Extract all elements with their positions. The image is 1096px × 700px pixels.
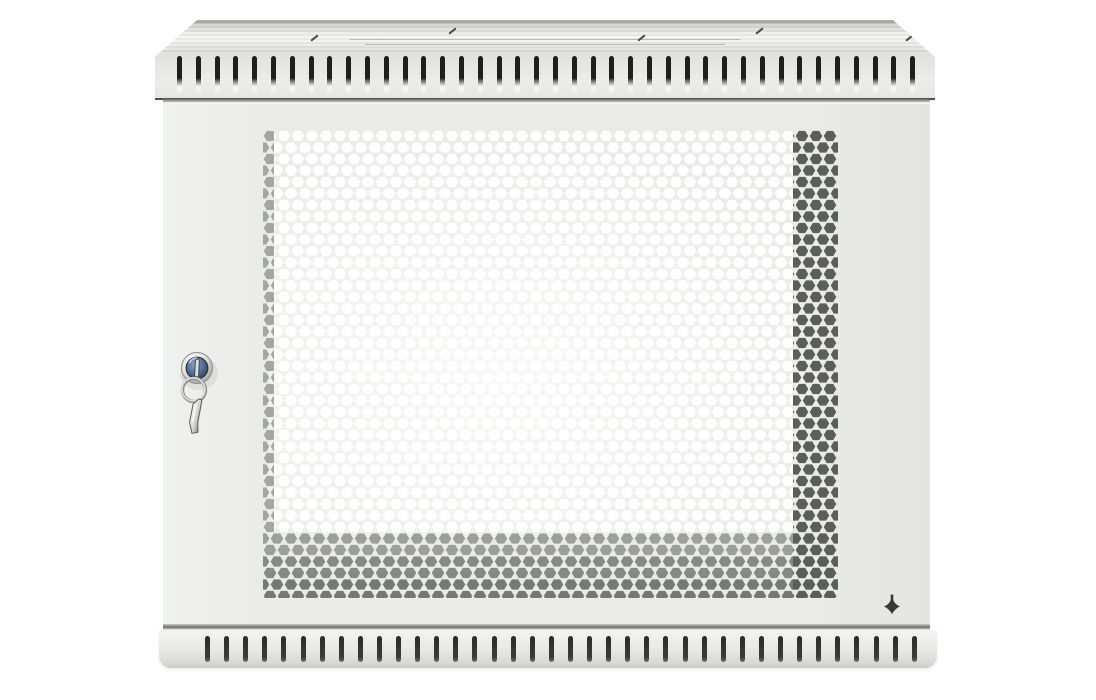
top-surface: [155, 20, 935, 54]
vent-slot: [205, 636, 210, 662]
vent-slot: [511, 636, 516, 662]
vent-slot: [358, 636, 363, 662]
vent-slot: [421, 56, 426, 93]
vent-slot: [262, 636, 267, 662]
vent-slot: [722, 56, 727, 93]
vent-slot: [281, 636, 286, 662]
vent-slot: [196, 56, 201, 93]
metal-sheen: [155, 20, 935, 54]
vent-slot: [628, 56, 633, 93]
vent-slot: [346, 56, 351, 93]
vent-slot: [703, 56, 708, 93]
vent-slot: [327, 56, 332, 93]
vent-slot: [492, 636, 497, 662]
vent-slot: [440, 56, 445, 93]
vent-slot: [453, 636, 458, 662]
vent-slot: [835, 636, 840, 662]
vent-slot: [403, 56, 408, 93]
vent-slot: [215, 56, 220, 93]
vent-slot: [377, 636, 382, 662]
vent-slot: [478, 56, 483, 93]
vent-slot: [549, 636, 554, 662]
product-photo: [0, 0, 1096, 700]
vent-slot: [271, 56, 276, 93]
vent-slot: [779, 56, 784, 93]
vent-slot: [320, 636, 325, 662]
vent-slot: [873, 56, 878, 93]
vent-slot: [740, 636, 745, 662]
vent-slot: [587, 636, 592, 662]
vent-slot: [459, 56, 464, 93]
vent-slot: [797, 56, 802, 93]
front-door: [163, 103, 930, 624]
vent-slot: [434, 636, 439, 662]
vent-slot: [874, 636, 879, 662]
vent-slot: [290, 56, 295, 93]
top-vent-grille: [155, 54, 935, 98]
vent-slot: [224, 636, 229, 662]
vent-slot: [252, 56, 257, 93]
vent-slot: [396, 636, 401, 662]
vent-slot: [721, 636, 726, 662]
bottom-panel: [159, 630, 937, 668]
vent-slot: [741, 56, 746, 93]
vent-slot: [647, 56, 652, 93]
vent-slot: [891, 56, 896, 93]
vent-slot: [309, 56, 314, 93]
vent-slot: [666, 56, 671, 93]
vent-slot: [572, 56, 577, 93]
top-panel-seam: [365, 44, 725, 45]
vent-slot: [685, 56, 690, 93]
top-panel-seam: [350, 39, 740, 40]
vent-slot: [497, 56, 502, 93]
vent-slot: [644, 636, 649, 662]
vent-slot: [760, 56, 765, 93]
server-cabinet: [0, 0, 1096, 700]
vent-slot: [683, 636, 688, 662]
vent-slot: [854, 636, 859, 662]
keyway: [195, 359, 200, 377]
perforated-mesh-panel: [263, 130, 838, 598]
vent-slot: [835, 56, 840, 93]
vent-slot: [759, 636, 764, 662]
vent-slot: [339, 636, 344, 662]
door-lock-assembly: [157, 333, 247, 458]
vent-slot: [301, 636, 306, 662]
vent-slot: [816, 636, 821, 662]
vent-slot: [910, 56, 915, 93]
vent-slot: [384, 56, 389, 93]
vent-slot: [365, 56, 370, 93]
vent-slot: [534, 56, 539, 93]
vent-slot: [568, 636, 573, 662]
vent-slot: [702, 636, 707, 662]
key: [186, 398, 206, 435]
vent-slot: [553, 56, 558, 93]
vent-slot: [233, 56, 238, 93]
vent-slot: [663, 636, 668, 662]
vent-slot: [177, 56, 182, 93]
vent-slot: [854, 56, 859, 93]
vent-slot: [816, 56, 821, 93]
vent-slot: [243, 636, 248, 662]
vent-slot: [797, 636, 802, 662]
bottom-vent-grille: [159, 630, 937, 668]
vent-slot: [778, 636, 783, 662]
vent-slot: [912, 636, 917, 662]
vent-slot: [415, 636, 420, 662]
top-panel: [155, 20, 935, 100]
vent-slot: [893, 636, 898, 662]
vent-slot: [515, 56, 520, 93]
vent-slot: [625, 636, 630, 662]
vent-slot: [472, 636, 477, 662]
vent-slot: [606, 636, 611, 662]
vent-slot: [530, 636, 535, 662]
vent-slot: [591, 56, 596, 93]
vent-slot: [609, 56, 614, 93]
ground-hole-icon: [879, 592, 905, 621]
